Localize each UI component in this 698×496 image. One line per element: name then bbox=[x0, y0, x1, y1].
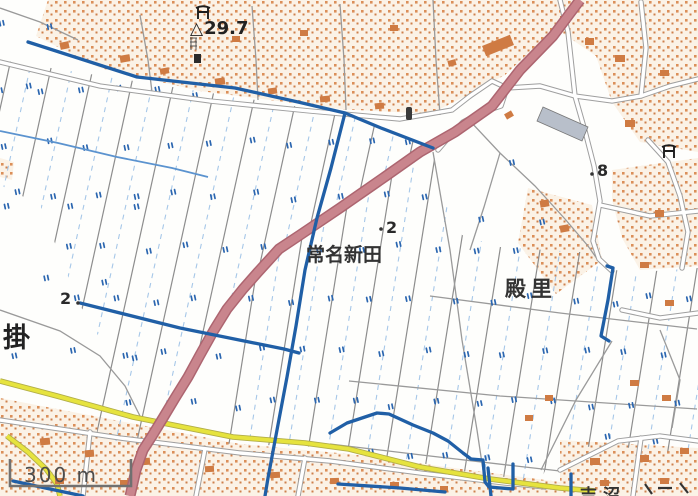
building bbox=[615, 55, 625, 62]
monument-icon bbox=[406, 107, 412, 120]
building bbox=[232, 36, 240, 42]
map-canvas: 掛 殿里 常名新田 吉沼 △29.7 8 2 2 300 m bbox=[0, 0, 698, 496]
building bbox=[268, 87, 278, 94]
building bbox=[545, 395, 553, 401]
building bbox=[640, 455, 649, 462]
map-art bbox=[0, 0, 698, 496]
spot-elevation-dot bbox=[76, 301, 80, 305]
building bbox=[660, 478, 669, 484]
building bbox=[205, 466, 214, 472]
building bbox=[600, 480, 609, 486]
building bbox=[270, 472, 280, 479]
building bbox=[590, 458, 600, 465]
monument-icon bbox=[194, 54, 201, 63]
building bbox=[640, 262, 649, 268]
building bbox=[390, 25, 398, 31]
spot-elevation-dot bbox=[379, 227, 383, 231]
building bbox=[662, 395, 671, 401]
building bbox=[320, 95, 331, 102]
building bbox=[655, 210, 664, 217]
building bbox=[625, 120, 635, 127]
building bbox=[40, 438, 51, 446]
spot-elevation-dot bbox=[590, 172, 594, 176]
building bbox=[680, 448, 689, 454]
building bbox=[300, 30, 308, 36]
building bbox=[585, 38, 594, 45]
building bbox=[660, 70, 669, 76]
building bbox=[630, 380, 639, 386]
building bbox=[55, 478, 64, 484]
building bbox=[665, 300, 674, 306]
building bbox=[375, 103, 384, 110]
building bbox=[525, 415, 533, 421]
building bbox=[85, 450, 95, 458]
